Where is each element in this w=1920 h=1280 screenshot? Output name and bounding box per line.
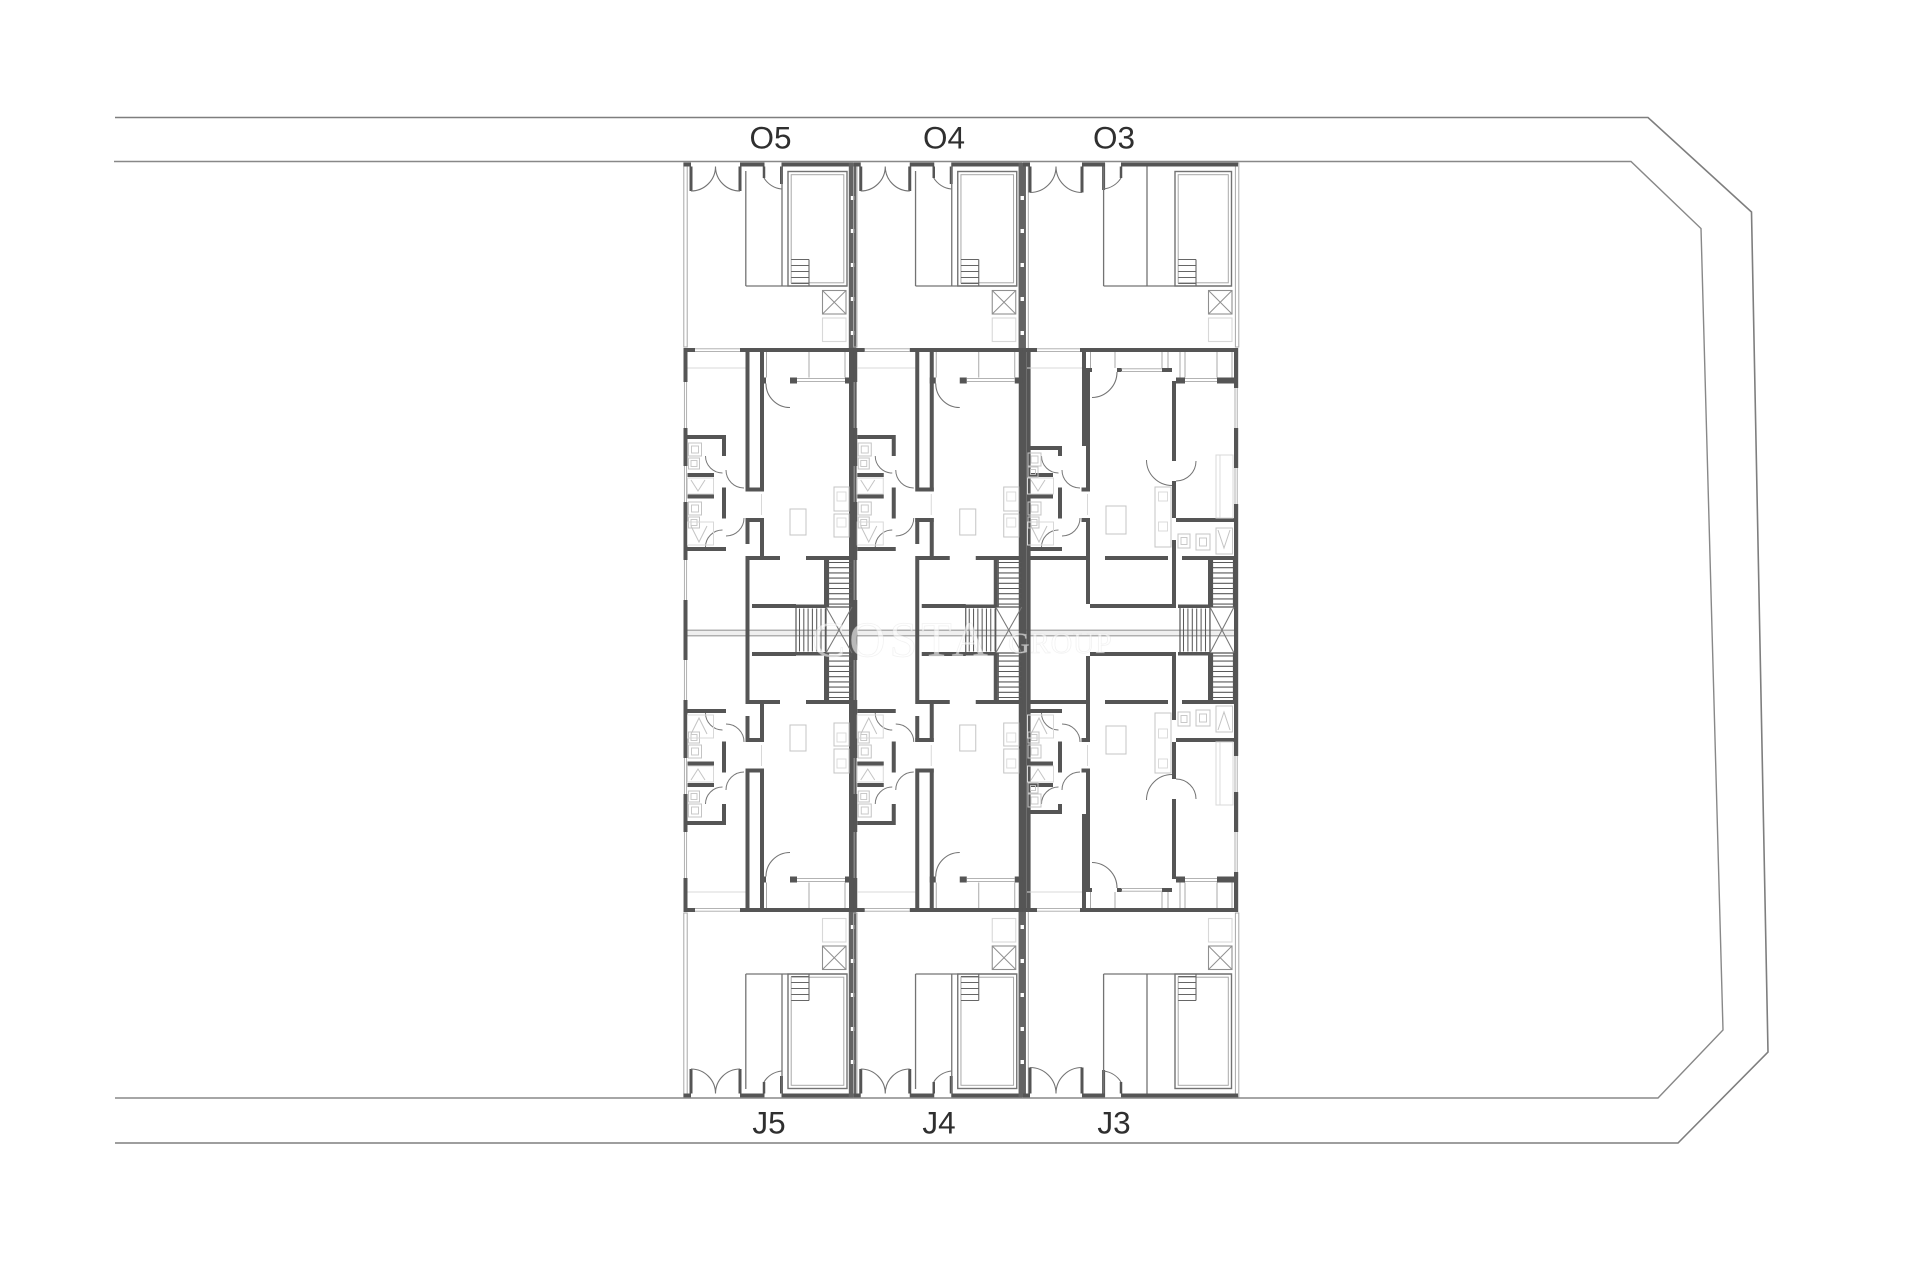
svg-text:O4: O4 — [923, 120, 965, 156]
svg-text:O3: O3 — [1093, 120, 1135, 156]
svg-text:COSTA: COSTA — [812, 611, 992, 667]
svg-text:J3: J3 — [1097, 1105, 1130, 1141]
svg-text:J4: J4 — [922, 1105, 955, 1141]
svg-text:O5: O5 — [749, 120, 791, 156]
svg-text:J5: J5 — [752, 1105, 785, 1141]
svg-text:GROUP: GROUP — [1008, 627, 1112, 660]
